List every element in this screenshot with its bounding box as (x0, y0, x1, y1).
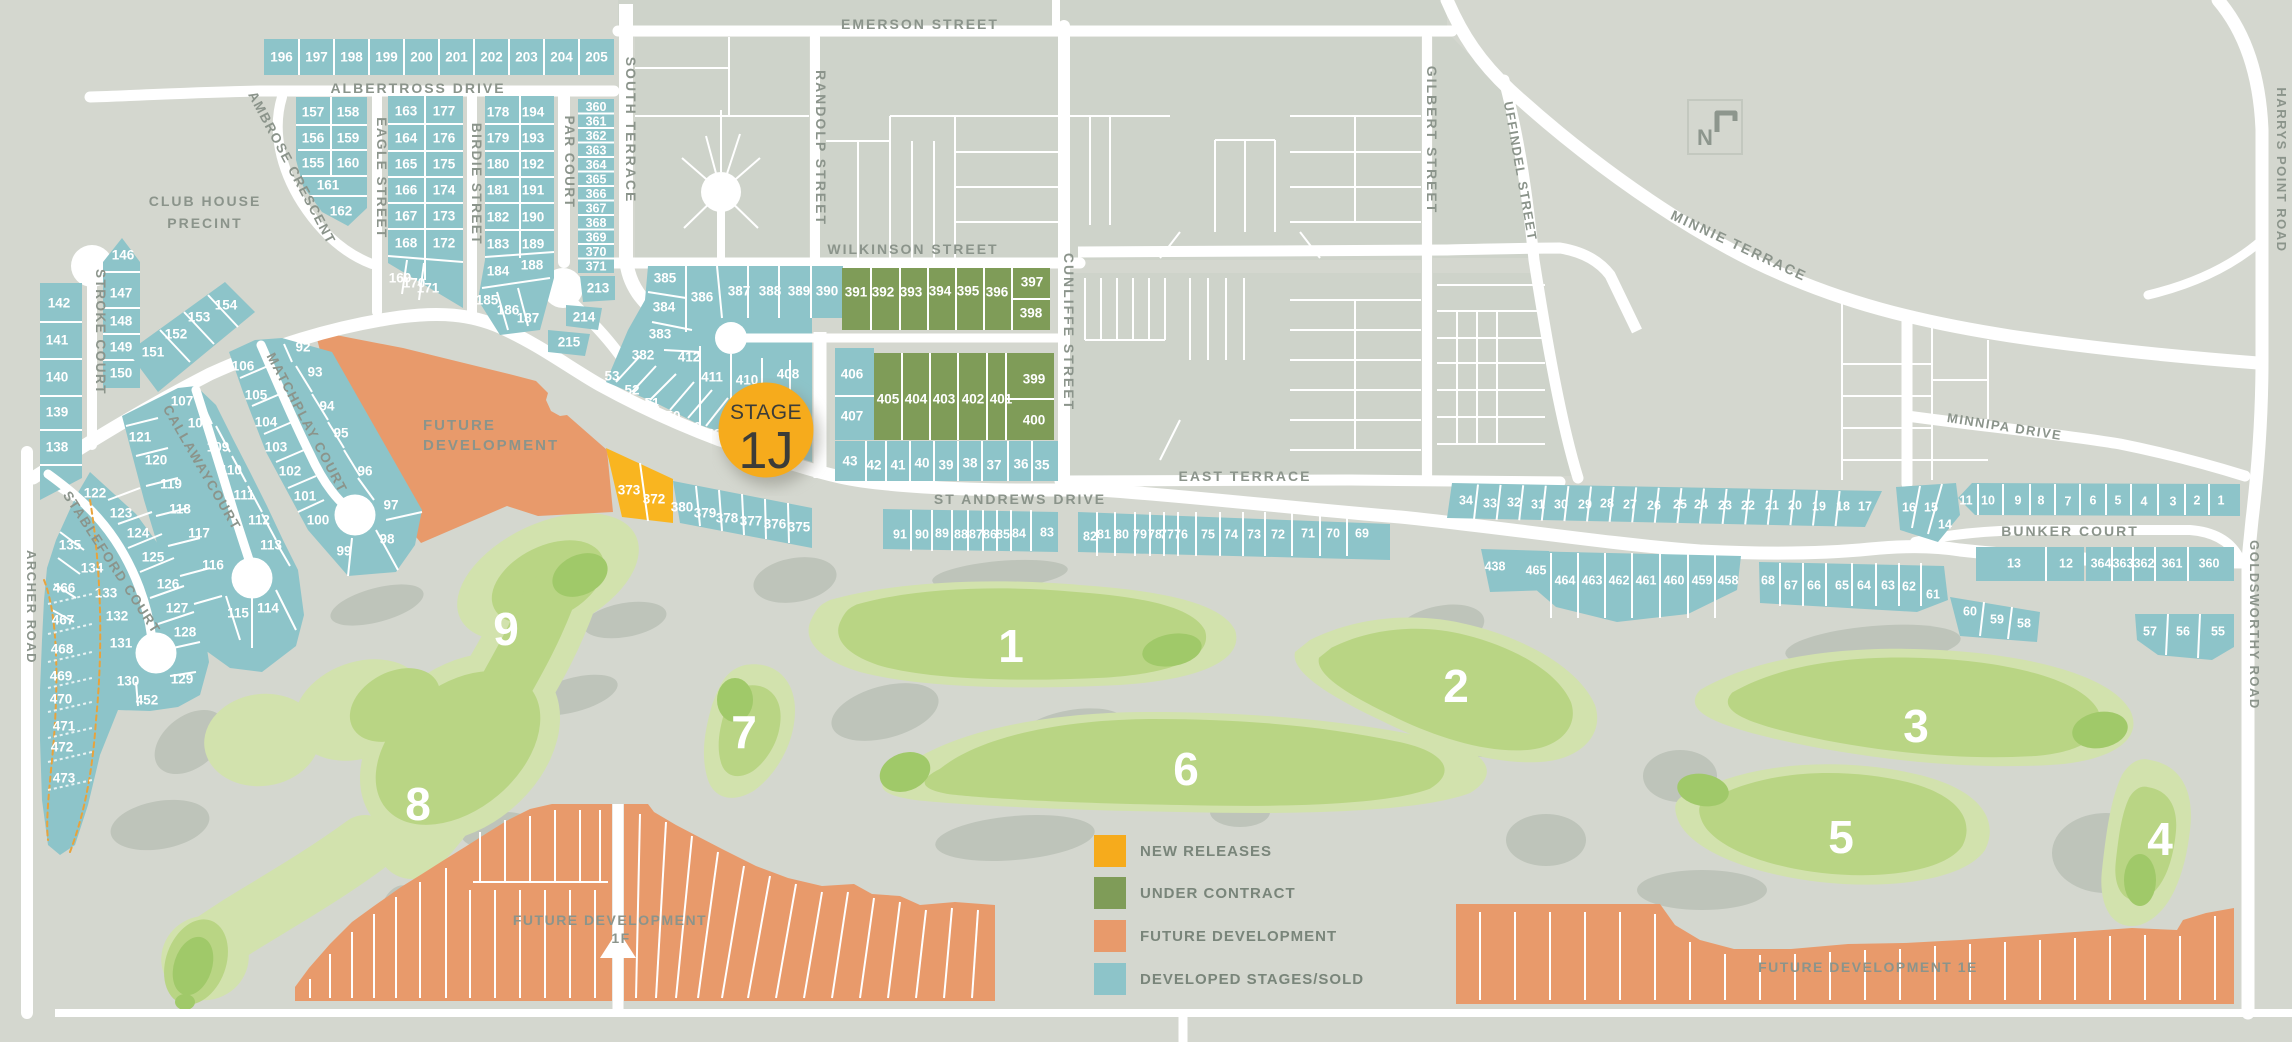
svg-text:380: 380 (671, 500, 694, 515)
svg-text:18: 18 (1836, 500, 1850, 514)
svg-text:UNDER CONTRACT: UNDER CONTRACT (1140, 885, 1296, 902)
svg-text:91: 91 (893, 528, 907, 542)
svg-text:116: 116 (202, 558, 224, 573)
svg-text:151: 151 (142, 345, 165, 360)
svg-text:90: 90 (915, 528, 929, 542)
svg-text:101: 101 (294, 489, 317, 504)
svg-text:BUNKER COURT: BUNKER COURT (2001, 523, 2139, 539)
svg-text:62: 62 (1902, 580, 1916, 594)
svg-text:82: 82 (1083, 530, 1097, 544)
svg-text:197: 197 (305, 50, 328, 65)
svg-text:127: 127 (166, 601, 189, 616)
svg-text:CUNLIFFE STREET: CUNLIFFE STREET (1061, 253, 1077, 411)
svg-text:35: 35 (1034, 458, 1050, 473)
svg-text:389: 389 (788, 284, 811, 299)
svg-text:134: 134 (81, 561, 104, 576)
svg-text:177: 177 (433, 104, 456, 119)
svg-text:190: 190 (522, 210, 545, 225)
svg-text:160: 160 (337, 156, 360, 171)
svg-text:65: 65 (1835, 579, 1849, 593)
svg-text:121: 121 (129, 430, 152, 445)
svg-text:173: 173 (433, 209, 456, 224)
svg-text:189: 189 (522, 237, 545, 252)
svg-text:462: 462 (1609, 574, 1630, 588)
svg-text:75: 75 (1201, 528, 1215, 542)
svg-text:103: 103 (265, 440, 288, 455)
svg-text:162: 162 (330, 204, 353, 219)
svg-text:140: 140 (46, 370, 69, 385)
svg-text:56: 56 (2176, 625, 2190, 639)
svg-text:473: 473 (53, 771, 76, 786)
svg-text:64: 64 (1857, 579, 1871, 593)
svg-text:57: 57 (2143, 625, 2157, 639)
svg-text:400: 400 (1023, 413, 1046, 428)
svg-text:194: 194 (522, 105, 545, 120)
svg-text:458: 458 (1718, 574, 1739, 588)
svg-text:192: 192 (522, 157, 545, 172)
svg-text:73: 73 (1247, 528, 1261, 542)
svg-text:196: 196 (270, 50, 293, 65)
svg-text:105: 105 (245, 388, 268, 403)
svg-text:156: 156 (302, 131, 325, 146)
svg-text:180: 180 (487, 157, 510, 172)
svg-text:399: 399 (1023, 372, 1046, 387)
svg-text:146: 146 (112, 248, 135, 263)
svg-text:FUTURE DEVELOPMENT 1E: FUTURE DEVELOPMENT 1E (1758, 959, 1978, 975)
svg-text:165: 165 (395, 157, 418, 172)
svg-text:384: 384 (653, 300, 676, 315)
svg-text:1J: 1J (739, 422, 794, 480)
svg-text:131: 131 (110, 636, 133, 651)
svg-text:113: 113 (260, 538, 282, 553)
svg-text:95: 95 (333, 426, 349, 441)
svg-text:366: 366 (586, 187, 607, 201)
svg-text:367: 367 (586, 202, 607, 216)
svg-text:8: 8 (405, 778, 431, 830)
svg-text:135: 135 (59, 538, 82, 553)
svg-text:393: 393 (900, 285, 923, 300)
svg-text:HARRYS POINT ROAD: HARRYS POINT ROAD (2274, 87, 2289, 252)
svg-text:83: 83 (1040, 526, 1054, 540)
svg-text:460: 460 (1664, 574, 1685, 588)
svg-text:104: 104 (255, 415, 278, 430)
svg-text:373: 373 (618, 483, 641, 498)
svg-text:167: 167 (395, 209, 418, 224)
svg-text:412: 412 (678, 350, 701, 365)
svg-text:395: 395 (957, 284, 980, 299)
svg-text:STAGE: STAGE (730, 401, 802, 424)
svg-text:41: 41 (890, 458, 906, 473)
svg-text:BIRDIE STREET: BIRDIE STREET (469, 123, 484, 245)
svg-text:139: 139 (46, 405, 69, 420)
svg-text:59: 59 (1990, 613, 2004, 627)
svg-text:406: 406 (841, 367, 864, 382)
svg-text:378: 378 (716, 511, 739, 526)
svg-text:8: 8 (2038, 494, 2045, 508)
svg-text:92: 92 (295, 340, 310, 355)
svg-text:7: 7 (731, 706, 757, 758)
svg-text:117: 117 (188, 526, 210, 541)
svg-text:469: 469 (50, 669, 73, 684)
svg-text:122: 122 (84, 486, 107, 501)
svg-text:85: 85 (996, 528, 1010, 542)
svg-text:463: 463 (1582, 574, 1603, 588)
svg-text:20: 20 (1788, 499, 1802, 513)
svg-text:27: 27 (1623, 498, 1637, 512)
svg-text:188: 188 (521, 258, 544, 273)
svg-text:401: 401 (990, 392, 1013, 407)
svg-text:204: 204 (550, 50, 573, 65)
svg-text:14: 14 (1938, 518, 1952, 532)
svg-text:FUTURE: FUTURE (423, 417, 496, 434)
svg-text:4: 4 (2147, 813, 2173, 865)
svg-text:152: 152 (165, 327, 188, 342)
svg-text:379: 379 (694, 506, 717, 521)
svg-text:25: 25 (1673, 498, 1687, 512)
svg-text:34: 34 (1459, 494, 1473, 508)
svg-text:39: 39 (938, 458, 953, 473)
svg-text:394: 394 (929, 284, 952, 299)
svg-text:377: 377 (740, 514, 763, 529)
svg-text:6: 6 (2090, 494, 2097, 508)
svg-text:21: 21 (1765, 499, 1779, 513)
svg-text:102: 102 (279, 464, 302, 479)
svg-text:ALBERTROSS DRIVE: ALBERTROSS DRIVE (330, 80, 505, 96)
svg-text:GILBERT STREET: GILBERT STREET (1424, 66, 1440, 215)
svg-text:181: 181 (487, 183, 510, 198)
svg-text:72: 72 (1271, 528, 1285, 542)
svg-text:157: 157 (302, 105, 325, 120)
svg-text:182: 182 (487, 210, 510, 225)
svg-text:364: 364 (2091, 557, 2112, 571)
svg-text:363: 363 (586, 144, 607, 158)
svg-text:141: 141 (46, 333, 69, 348)
svg-text:89: 89 (935, 527, 949, 541)
svg-text:361: 361 (2162, 557, 2183, 571)
svg-text:214: 214 (573, 310, 596, 325)
svg-text:58: 58 (2017, 617, 2031, 631)
svg-text:23: 23 (1718, 499, 1732, 513)
svg-text:164: 164 (395, 131, 418, 146)
svg-text:402: 402 (962, 392, 985, 407)
svg-text:467: 467 (52, 613, 75, 628)
svg-text:176: 176 (433, 131, 456, 146)
svg-text:115: 115 (227, 606, 249, 621)
svg-text:114: 114 (257, 601, 279, 616)
svg-text:119: 119 (160, 477, 182, 492)
svg-text:9: 9 (2015, 494, 2022, 508)
svg-text:66: 66 (1807, 579, 1821, 593)
svg-text:28: 28 (1600, 497, 1614, 511)
svg-text:459: 459 (1692, 574, 1713, 588)
svg-text:31: 31 (1531, 498, 1545, 512)
svg-text:360: 360 (2199, 557, 2220, 571)
svg-text:183: 183 (487, 237, 510, 252)
svg-text:112: 112 (248, 513, 270, 528)
svg-text:1: 1 (2218, 494, 2225, 508)
svg-text:363: 363 (2113, 557, 2134, 571)
svg-text:76: 76 (1174, 528, 1188, 542)
svg-text:61: 61 (1926, 588, 1940, 602)
svg-text:158: 158 (337, 105, 360, 120)
svg-text:407: 407 (841, 409, 864, 424)
svg-text:3: 3 (2170, 495, 2177, 509)
svg-text:130: 130 (117, 674, 140, 689)
svg-text:69: 69 (1355, 527, 1369, 541)
svg-text:2: 2 (1443, 660, 1469, 712)
svg-text:36: 36 (1013, 457, 1029, 472)
svg-text:470: 470 (50, 692, 73, 707)
svg-text:60: 60 (1963, 605, 1977, 619)
svg-text:154: 154 (215, 298, 238, 313)
svg-text:364: 364 (586, 158, 607, 172)
svg-text:397: 397 (1021, 275, 1044, 290)
svg-text:161: 161 (317, 178, 340, 193)
svg-text:199: 199 (375, 50, 398, 65)
svg-text:77: 77 (1160, 528, 1174, 542)
svg-text:74: 74 (1224, 528, 1238, 542)
svg-text:124: 124 (127, 526, 150, 541)
svg-text:ARCHER ROAD: ARCHER ROAD (24, 550, 39, 664)
svg-text:RANDOLP STREET: RANDOLP STREET (813, 70, 829, 226)
svg-text:390: 390 (816, 284, 839, 299)
svg-text:99: 99 (336, 544, 351, 559)
svg-text:100: 100 (307, 513, 330, 528)
svg-text:17: 17 (1858, 500, 1872, 514)
svg-text:438: 438 (1485, 560, 1506, 574)
svg-text:1F: 1F (611, 930, 630, 946)
svg-text:9: 9 (493, 603, 519, 655)
svg-text:202: 202 (480, 50, 503, 65)
svg-text:213: 213 (587, 281, 610, 296)
svg-text:29: 29 (1578, 498, 1592, 512)
svg-text:179: 179 (487, 131, 510, 146)
svg-text:SOUTH TERRACE: SOUTH TERRACE (623, 57, 639, 204)
svg-text:201: 201 (445, 50, 468, 65)
svg-text:26: 26 (1647, 499, 1661, 513)
svg-text:362: 362 (2134, 557, 2155, 571)
svg-text:94: 94 (319, 399, 335, 414)
svg-text:403: 403 (933, 392, 956, 407)
svg-text:118: 118 (169, 502, 191, 517)
svg-text:168: 168 (395, 236, 418, 251)
svg-text:174: 174 (433, 183, 456, 198)
svg-text:40: 40 (914, 456, 929, 471)
svg-text:155: 155 (302, 156, 325, 171)
svg-text:79: 79 (1133, 528, 1147, 542)
svg-text:PAR COURT: PAR COURT (562, 116, 577, 209)
svg-text:375: 375 (788, 520, 811, 535)
svg-text:7: 7 (2065, 495, 2072, 509)
svg-text:129: 129 (171, 672, 194, 687)
svg-text:159: 159 (337, 131, 360, 146)
svg-text:404: 404 (905, 392, 928, 407)
svg-text:10: 10 (1981, 494, 1995, 508)
svg-text:120: 120 (145, 453, 168, 468)
svg-text:471: 471 (53, 719, 76, 734)
svg-text:55: 55 (2211, 625, 2225, 639)
svg-text:200: 200 (410, 50, 433, 65)
svg-text:93: 93 (307, 365, 323, 380)
svg-text:FUTURE DEVELOPMENT: FUTURE DEVELOPMENT (513, 912, 707, 928)
svg-text:70: 70 (1326, 527, 1340, 541)
svg-text:STROKE COURT: STROKE COURT (93, 269, 108, 395)
svg-text:DEVELOPMENT: DEVELOPMENT (423, 437, 559, 454)
svg-text:WILKINSON STREET: WILKINSON STREET (827, 241, 998, 257)
svg-text:110: 110 (220, 463, 242, 478)
svg-text:63: 63 (1881, 579, 1895, 593)
svg-text:203: 203 (515, 50, 538, 65)
svg-text:51: 51 (644, 396, 660, 411)
svg-text:24: 24 (1694, 498, 1708, 512)
svg-text:6: 6 (1173, 743, 1199, 795)
svg-text:52: 52 (624, 383, 639, 398)
svg-text:376: 376 (764, 517, 787, 532)
svg-text:385: 385 (654, 271, 677, 286)
svg-text:68: 68 (1761, 574, 1775, 588)
svg-text:111: 111 (233, 488, 255, 503)
svg-text:PRECINT: PRECINT (167, 215, 242, 231)
svg-text:37: 37 (986, 458, 1001, 473)
svg-text:187: 187 (517, 311, 540, 326)
svg-text:109: 109 (207, 440, 230, 455)
svg-text:50: 50 (665, 409, 680, 424)
svg-text:461: 461 (1636, 574, 1657, 588)
svg-text:NEW RELEASES: NEW RELEASES (1140, 843, 1272, 860)
svg-text:38: 38 (962, 456, 978, 471)
svg-text:GOLDSWORTHY ROAD: GOLDSWORTHY ROAD (2247, 540, 2262, 710)
svg-text:388: 388 (759, 284, 782, 299)
svg-text:42: 42 (866, 458, 881, 473)
svg-text:193: 193 (522, 131, 545, 146)
svg-text:86: 86 (983, 528, 997, 542)
svg-text:11: 11 (1959, 494, 1972, 508)
svg-text:30: 30 (1554, 498, 1568, 512)
svg-text:383: 383 (649, 327, 672, 342)
svg-text:N: N (1697, 125, 1713, 150)
svg-text:371: 371 (586, 260, 607, 274)
svg-text:80: 80 (1115, 528, 1129, 542)
svg-text:133: 133 (95, 586, 118, 601)
svg-text:408: 408 (777, 367, 800, 382)
svg-text:1: 1 (998, 620, 1024, 672)
svg-text:171: 171 (417, 281, 440, 296)
svg-text:372: 372 (643, 492, 666, 507)
svg-text:53: 53 (604, 369, 620, 384)
svg-text:4: 4 (2141, 495, 2148, 509)
svg-text:81: 81 (1097, 528, 1111, 542)
svg-text:468: 468 (51, 642, 74, 657)
svg-text:150: 150 (110, 366, 133, 381)
svg-text:465: 465 (1526, 564, 1547, 578)
svg-text:96: 96 (357, 464, 373, 479)
svg-text:369: 369 (586, 231, 607, 245)
svg-text:EAGLE STREET: EAGLE STREET (374, 117, 389, 239)
svg-text:EMERSON STREET: EMERSON STREET (841, 16, 999, 32)
svg-text:49: 49 (686, 420, 701, 435)
svg-text:172: 172 (433, 236, 456, 251)
svg-text:22: 22 (1741, 499, 1755, 513)
svg-text:184: 184 (487, 264, 510, 279)
svg-text:362: 362 (586, 129, 607, 143)
svg-text:392: 392 (872, 285, 895, 300)
svg-text:3: 3 (1903, 700, 1929, 752)
svg-text:123: 123 (110, 506, 133, 521)
svg-text:452: 452 (136, 693, 159, 708)
svg-text:ST ANDREWS DRIVE: ST ANDREWS DRIVE (934, 491, 1106, 507)
svg-text:125: 125 (142, 550, 165, 565)
svg-text:142: 142 (48, 296, 71, 311)
svg-text:386: 386 (691, 290, 714, 305)
svg-text:98: 98 (379, 532, 395, 547)
svg-text:128: 128 (174, 625, 197, 640)
svg-text:126: 126 (157, 577, 180, 592)
svg-text:5: 5 (2115, 494, 2122, 508)
svg-text:185: 185 (476, 293, 499, 308)
svg-text:EAST TERRACE: EAST TERRACE (1179, 468, 1312, 484)
svg-text:DEVELOPED STAGES/SOLD: DEVELOPED STAGES/SOLD (1140, 971, 1364, 988)
svg-text:43: 43 (842, 454, 858, 469)
svg-text:205: 205 (585, 50, 608, 65)
svg-text:33: 33 (1483, 497, 1497, 511)
svg-text:153: 153 (188, 310, 211, 325)
svg-text:178: 178 (487, 105, 510, 120)
svg-text:16: 16 (1902, 501, 1916, 515)
svg-text:405: 405 (877, 392, 900, 407)
svg-text:166: 166 (395, 183, 418, 198)
svg-text:71: 71 (1301, 527, 1315, 541)
svg-text:411: 411 (701, 370, 723, 385)
svg-text:396: 396 (986, 285, 1009, 300)
svg-text:19: 19 (1812, 500, 1826, 514)
svg-text:2: 2 (2194, 494, 2201, 508)
svg-text:365: 365 (586, 173, 607, 187)
svg-text:191: 191 (522, 183, 545, 198)
svg-text:67: 67 (1784, 579, 1798, 593)
svg-text:138: 138 (46, 440, 69, 455)
svg-text:97: 97 (383, 498, 398, 513)
svg-text:132: 132 (106, 609, 129, 624)
svg-text:163: 163 (395, 104, 418, 119)
svg-text:382: 382 (632, 348, 655, 363)
svg-text:368: 368 (586, 216, 607, 230)
svg-text:360: 360 (586, 100, 607, 114)
svg-text:198: 198 (340, 50, 363, 65)
svg-text:391: 391 (845, 285, 868, 300)
svg-text:13: 13 (2007, 557, 2021, 571)
svg-text:148: 148 (110, 314, 133, 329)
svg-text:472: 472 (51, 740, 74, 755)
svg-text:108: 108 (188, 416, 211, 431)
svg-text:12: 12 (2059, 557, 2073, 571)
svg-text:175: 175 (433, 157, 456, 172)
svg-text:106: 106 (232, 359, 255, 374)
svg-text:361: 361 (586, 115, 607, 129)
svg-text:32: 32 (1507, 496, 1521, 510)
svg-text:84: 84 (1012, 527, 1026, 541)
svg-text:466: 466 (53, 581, 76, 596)
svg-text:215: 215 (558, 335, 581, 350)
svg-text:CLUB HOUSE: CLUB HOUSE (149, 193, 262, 209)
svg-text:FUTURE DEVELOPMENT: FUTURE DEVELOPMENT (1140, 928, 1337, 945)
svg-text:88: 88 (954, 528, 968, 542)
svg-text:147: 147 (110, 286, 133, 301)
svg-text:5: 5 (1828, 811, 1854, 863)
svg-text:464: 464 (1555, 574, 1576, 588)
svg-text:398: 398 (1020, 306, 1043, 321)
svg-text:87: 87 (969, 528, 983, 542)
svg-text:387: 387 (728, 284, 751, 299)
